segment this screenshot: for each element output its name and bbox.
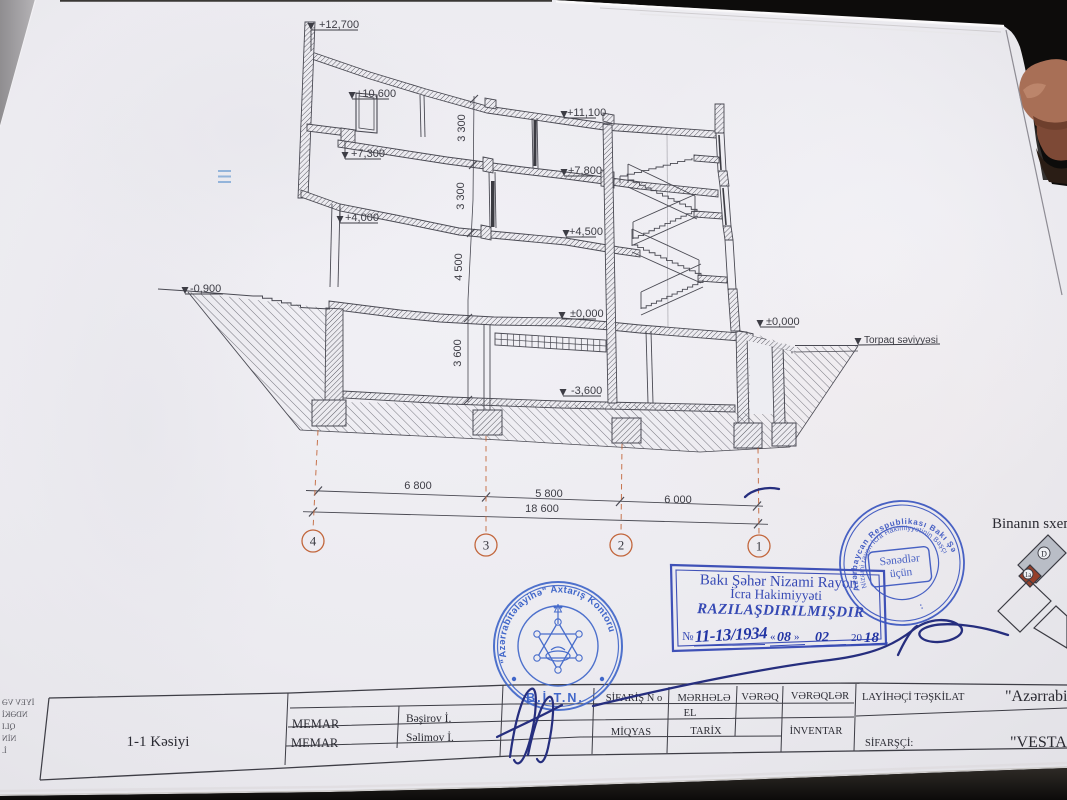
svg-text:SİFARİŞ N o: SİFARİŞ N o: [606, 692, 662, 704]
svg-text:MEMAR: MEMAR: [291, 736, 339, 750]
svg-text:üçün: üçün: [889, 566, 913, 580]
svg-text:4 500: 4 500: [453, 253, 465, 281]
svg-text:-0,900: -0,900: [190, 283, 221, 295]
svg-text:NİN: NİN: [2, 734, 16, 743]
svg-text:3 300: 3 300: [456, 114, 468, 142]
svg-text:3 600: 3 600: [452, 339, 464, 367]
svg-text:08: 08: [777, 630, 791, 645]
svg-text:-3,600: -3,600: [571, 385, 602, 397]
svg-text:+7,300: +7,300: [351, 148, 385, 160]
svg-text:NDƏKİ: NDƏKİ: [2, 710, 28, 719]
svg-text:6 800: 6 800: [404, 480, 432, 492]
svg-text:+11,100: +11,100: [567, 107, 606, 119]
svg-text:+4,000: +4,000: [345, 212, 379, 224]
svg-text:4: 4: [310, 534, 317, 549]
svg-text:"Azərrabi: "Azərrabi: [1005, 688, 1067, 705]
svg-text:İ.: İ.: [2, 746, 7, 755]
svg-text:+12,700: +12,700: [319, 19, 359, 31]
svg-text:6 000: 6 000: [664, 494, 692, 506]
svg-text:3: 3: [483, 538, 490, 553]
svg-text:Bəşirov İ.: Bəşirov İ.: [406, 711, 451, 725]
svg-text:MİQYAS: MİQYAS: [611, 726, 651, 738]
svg-text:Səlimov İ.: Səlimov İ.: [406, 730, 454, 744]
svg-text:18 600: 18 600: [525, 503, 559, 515]
svg-text:LAYİHƏÇİ TƏŞKİLAT: LAYİHƏÇİ TƏŞKİLAT: [862, 691, 965, 703]
svg-text:İNVENTAR: İNVENTAR: [790, 725, 843, 737]
svg-text:MƏRHƏLƏ: MƏRHƏLƏ: [677, 693, 731, 704]
svg-text:D: D: [1041, 550, 1047, 559]
svg-text:1a: 1a: [1025, 571, 1033, 579]
svg-text:2: 2: [618, 538, 625, 553]
svg-text:"VESTA C: "VESTA C: [1010, 734, 1067, 751]
svg-text:5 800: 5 800: [535, 488, 563, 500]
svg-text:20: 20: [851, 632, 863, 644]
svg-text:TARİX: TARİX: [690, 725, 722, 737]
svg-text:18: 18: [864, 630, 880, 646]
svg-text:1-1 Kəsiyi: 1-1 Kəsiyi: [127, 734, 190, 750]
svg-text:«: «: [770, 631, 776, 643]
svg-text:VƏRƏQ: VƏRƏQ: [741, 692, 779, 703]
svg-text:Binanın sxemi: Binanın sxemi: [992, 516, 1067, 532]
svg-text:SİFARŞÇİ:: SİFARŞÇİ:: [865, 737, 913, 749]
svg-text:MEMAR: MEMAR: [292, 717, 340, 731]
svg-text:+7,800: +7,800: [568, 165, 602, 177]
svg-text:1: 1: [756, 539, 763, 554]
svg-text:11-13/1934: 11-13/1934: [694, 623, 767, 646]
svg-text:№: №: [682, 629, 694, 643]
svg-text:+4,500: +4,500: [569, 226, 603, 238]
svg-text:±0,000: ±0,000: [766, 316, 800, 328]
svg-text:İcra Hakimiyyəti: İcra Hakimiyyəti: [730, 586, 822, 603]
svg-text:İYEV VƏ: İYEV VƏ: [2, 698, 35, 707]
svg-text:»: »: [794, 631, 800, 643]
svg-text:±0,000: ±0,000: [570, 308, 604, 320]
svg-text:EL: EL: [684, 708, 697, 719]
svg-text:+10,600: +10,600: [356, 88, 396, 100]
svg-text:VƏRƏQLƏR: VƏRƏQLƏR: [791, 691, 849, 702]
svg-text:02: 02: [815, 630, 829, 645]
svg-text:3 300: 3 300: [455, 182, 467, 210]
svg-text:QLI: QLI: [2, 722, 16, 731]
